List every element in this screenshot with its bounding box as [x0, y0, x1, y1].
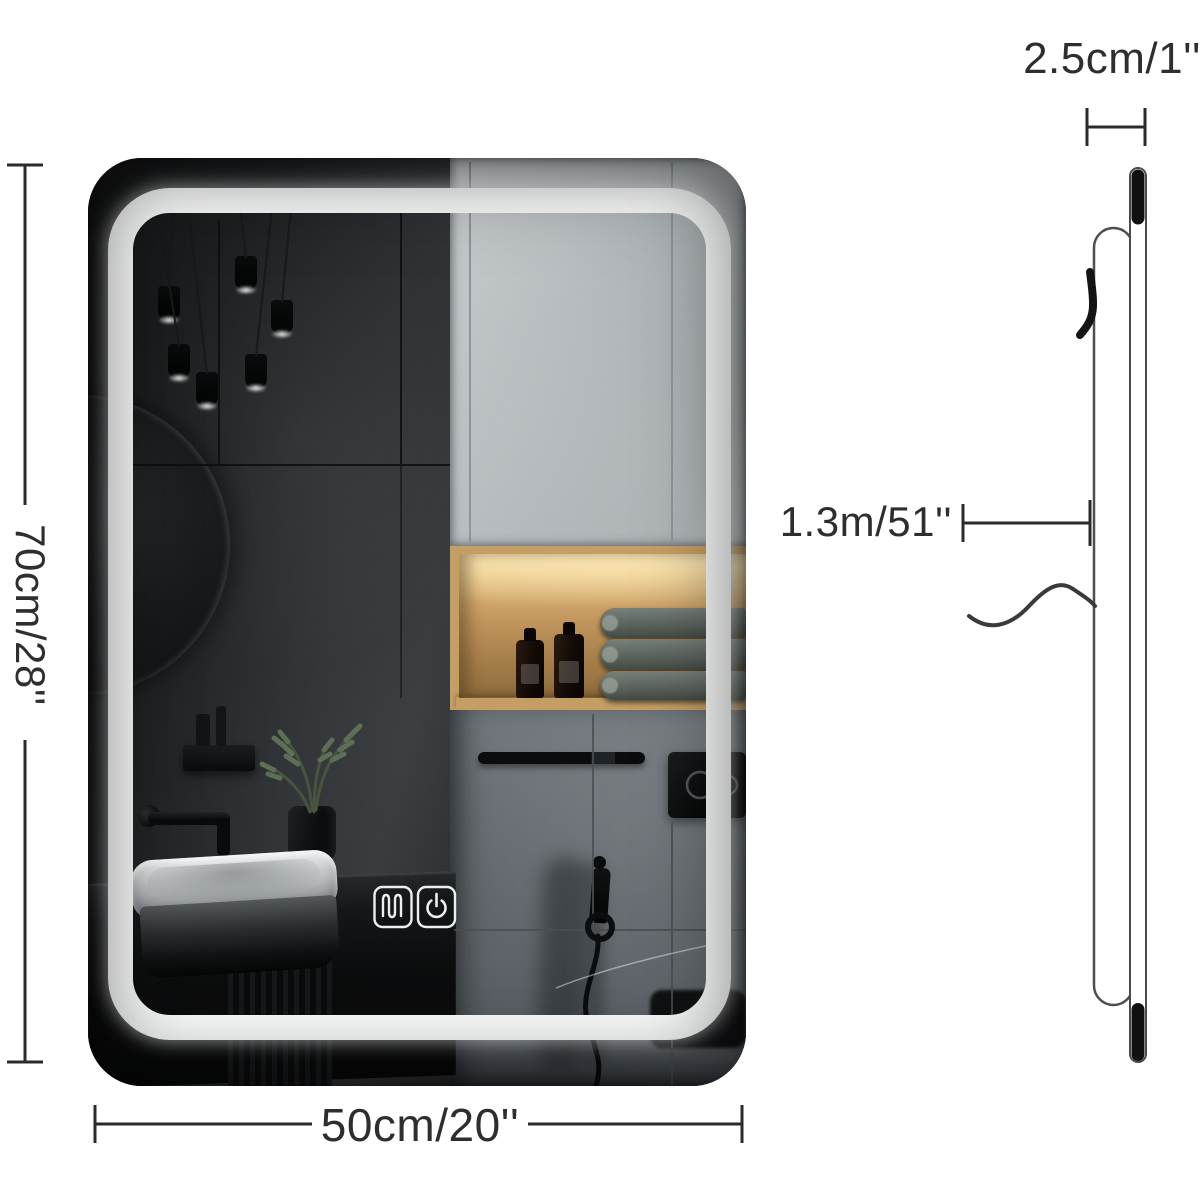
- length-dimension-label: 1.3m/51'': [768, 498, 952, 546]
- wall-mount-hook: [1080, 272, 1093, 335]
- side-view-bottom-edge: [1132, 1003, 1145, 1061]
- thickness-dimension-label: 2.5cm/1'': [1002, 34, 1200, 84]
- mirror-product-photo: [88, 158, 746, 1086]
- side-view-top-edge: [1132, 170, 1145, 225]
- mirror-dimension-diagram: 2.5cm/1'' 70cm/28'' 50cm/20'' 1.3m/51'': [0, 0, 1200, 1200]
- height-dimension-label: 70cm/28'': [6, 524, 54, 706]
- thickness-dimension-line: [1087, 108, 1145, 146]
- length-dimension-line: [963, 500, 1090, 546]
- mirror-side-view: [969, 168, 1146, 1062]
- side-view-mirror-panel: [1130, 168, 1146, 1062]
- width-dimension-label: 50cm/20'': [310, 1098, 530, 1152]
- side-view-back-housing: [1094, 228, 1133, 1005]
- photo-vignette: [88, 158, 746, 1086]
- power-cord: [969, 585, 1095, 625]
